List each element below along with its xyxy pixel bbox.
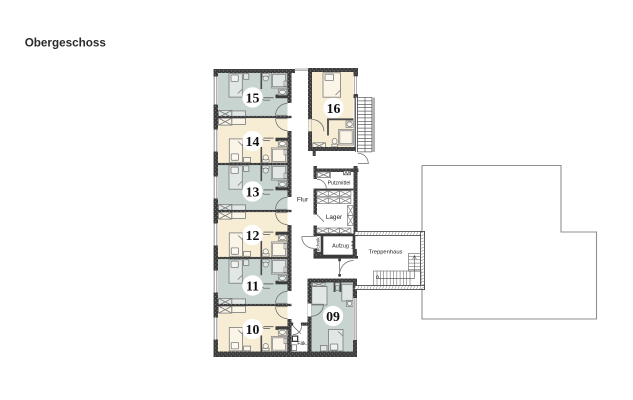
- svg-text:Technik: Technik: [316, 237, 322, 254]
- svg-text:Flur: Flur: [297, 197, 309, 204]
- svg-text:Putzmittel: Putzmittel: [328, 180, 351, 186]
- svg-text:Fäk.: Fäk.: [297, 341, 307, 347]
- svg-text:16: 16: [327, 101, 341, 116]
- svg-text:09: 09: [326, 309, 340, 324]
- svg-text:12: 12: [246, 228, 260, 243]
- svg-text:Aufzug: Aufzug: [332, 244, 349, 250]
- svg-text:10: 10: [246, 322, 260, 337]
- svg-text:14: 14: [246, 134, 260, 149]
- svg-text:Treppenhaus: Treppenhaus: [369, 249, 403, 255]
- svg-text:13: 13: [246, 184, 260, 199]
- svg-text:Obergeschoss: Obergeschoss: [25, 37, 107, 50]
- svg-text:Lager: Lager: [326, 214, 343, 221]
- svg-text:11: 11: [246, 278, 259, 293]
- svg-text:15: 15: [246, 90, 260, 105]
